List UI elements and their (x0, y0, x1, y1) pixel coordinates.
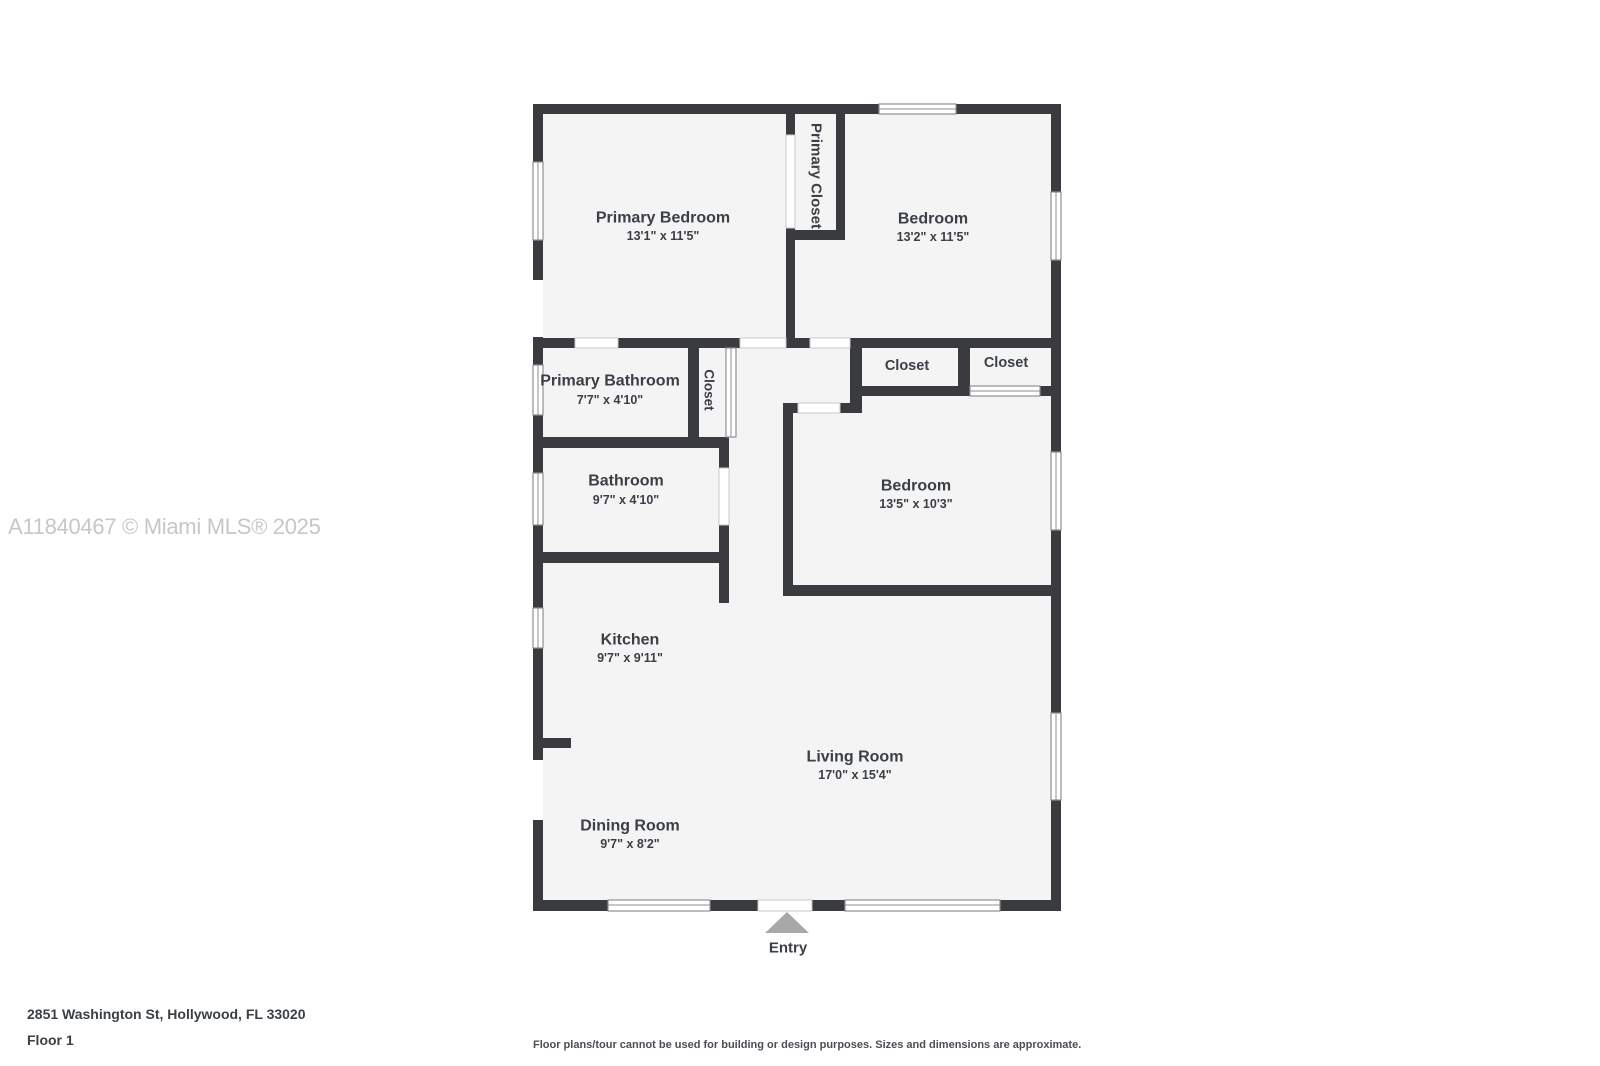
mls-watermark: A11840467 © Miami MLS® 2025 (8, 514, 321, 540)
room-dims-kitchen: 9'7" x 9'11" (597, 651, 663, 665)
room-label-bathroom: Bathroom (588, 473, 664, 490)
room-label-bedroom-middle: Bedroom (881, 478, 951, 495)
room-label-dining-room: Dining Room (580, 818, 680, 835)
closet-label-left: Closet (885, 358, 929, 374)
room-dims-primary-bathroom: 7'7" x 4'10" (577, 393, 644, 407)
room-label-bedroom-top: Bedroom (898, 211, 968, 228)
closet-label-primary: Primary Closet (808, 123, 825, 229)
entry-opening (758, 900, 812, 911)
disclaimer-text: Floor plans/tour cannot be used for buil… (533, 1039, 1061, 1051)
room-dims-living-room: 17'0" x 15'4" (818, 768, 891, 782)
entry-label: Entry (769, 940, 808, 957)
floor-label: Floor 1 (27, 1032, 74, 1048)
closet-label-right: Closet (984, 355, 1028, 371)
entry-arrow-icon (765, 912, 809, 933)
closet-label-hall: Closet (702, 369, 717, 411)
room-dims-bathroom: 9'7" x 4'10" (593, 493, 660, 507)
room-dims-bedroom-top: 13'2" x 11'5" (897, 230, 970, 244)
room-label-kitchen: Kitchen (601, 632, 660, 649)
room-dims-dining-room: 9'7" x 8'2" (600, 837, 660, 851)
room-label-primary-bedroom: Primary Bedroom (596, 210, 730, 227)
room-dims-primary-bedroom: 13'1" x 11'5" (627, 229, 700, 243)
room-label-living-room: Living Room (807, 749, 904, 766)
property-address: 2851 Washington St, Hollywood, FL 33020 (27, 1006, 306, 1022)
room-dims-bedroom-middle: 13'5" x 10'3" (879, 497, 952, 511)
room-label-primary-bathroom: Primary Bathroom (540, 373, 680, 390)
